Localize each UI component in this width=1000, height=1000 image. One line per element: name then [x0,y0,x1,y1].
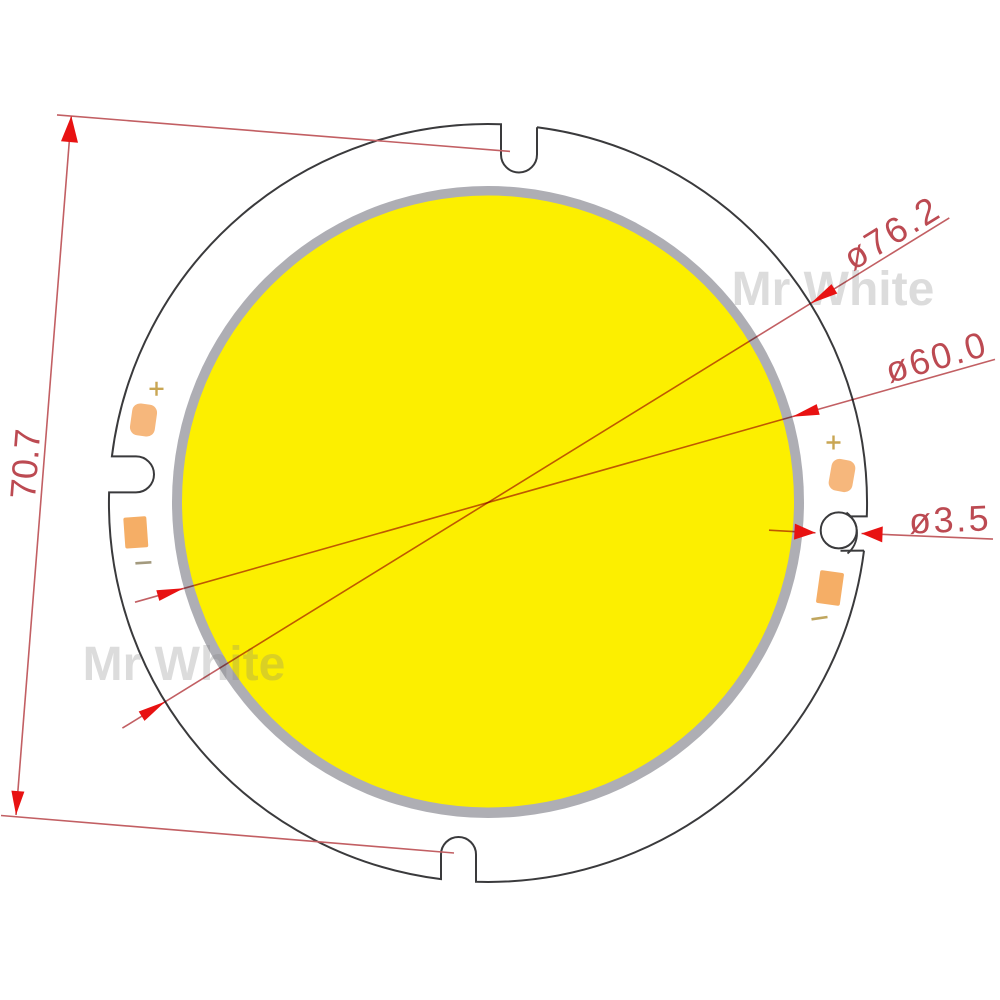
svg-text:ø3.5: ø3.5 [908,497,992,541]
svg-text:70.7: 70.7 [2,427,48,500]
